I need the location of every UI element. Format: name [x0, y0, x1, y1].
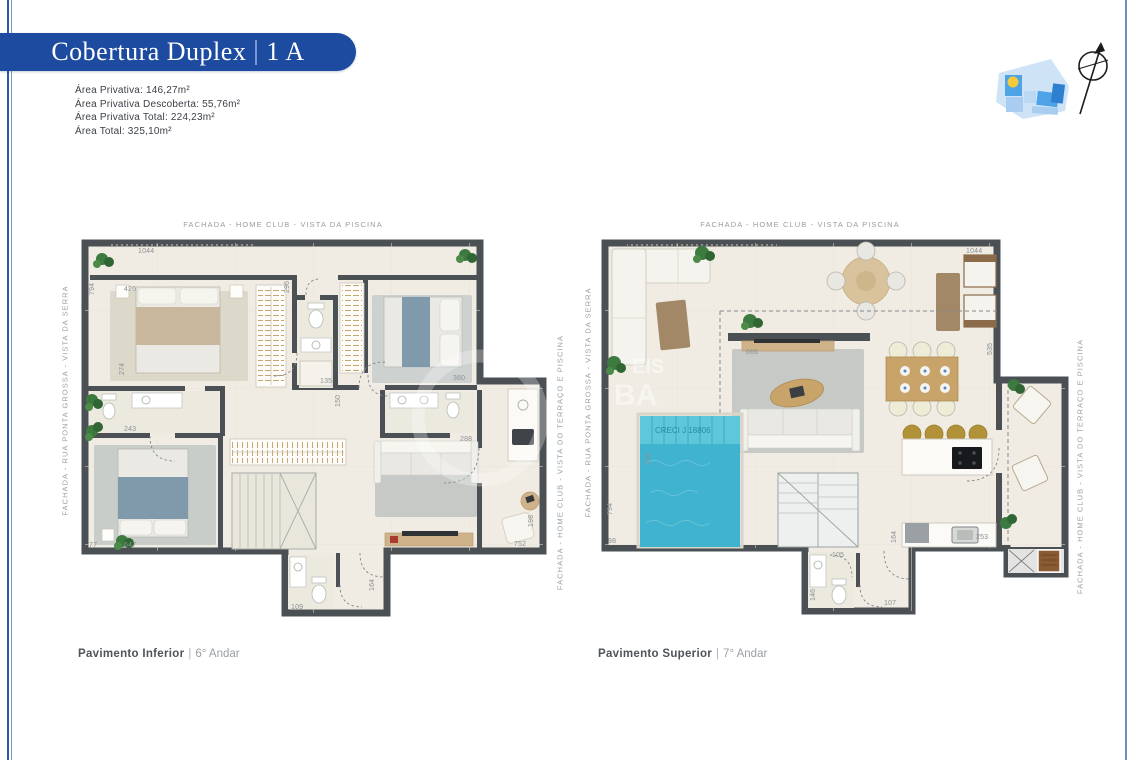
service-shaft: [1007, 548, 1065, 574]
caption-separator: |: [184, 648, 195, 660]
dim-146: 146: [810, 589, 817, 601]
page-title: Cobertura Duplex: [51, 37, 246, 67]
stairs: [778, 473, 858, 547]
caption-superior-title: Pavimento Superior: [598, 648, 712, 660]
dim-77: 77: [89, 542, 97, 549]
dim-243: 243: [124, 426, 136, 433]
dim-426: 426: [124, 286, 136, 293]
dim-98: 98: [608, 538, 616, 545]
caption-superior-floor: 7° Andar: [723, 648, 767, 660]
bathroom-suite-2: [385, 392, 475, 433]
dim-1044: 1044: [966, 248, 982, 255]
dining-table: [886, 342, 958, 416]
bathroom-suite-1: [299, 300, 333, 388]
key-plan-icon: [993, 55, 1077, 123]
dim-360: 360: [453, 375, 465, 382]
dim-164: 164: [891, 531, 898, 543]
title-banner: Cobertura Duplex 1 A: [0, 33, 356, 71]
dim-666: 666: [746, 349, 758, 356]
lavabo: [288, 555, 334, 609]
watermark-frag2: BA: [614, 379, 657, 412]
stairs: [232, 473, 316, 549]
kitchen-island: [902, 425, 992, 475]
facade-label-west-left: FACHADA - RUA PONTA GROSSA - VISTA DA SE…: [61, 201, 70, 601]
area-summary: Área Privativa: 146,27m² Área Privativa …: [75, 84, 240, 138]
area-descoberta: Área Privativa Descoberta: 55,76m²: [75, 98, 240, 112]
dim-150: 150: [335, 395, 342, 407]
facade-label-top-right: FACHADA - HOME CLUB - VISTA DA PISCINA: [602, 220, 998, 229]
dim-535: 535: [987, 343, 994, 355]
area-privativa: Área Privativa: 146,27m²: [75, 84, 240, 98]
dim-164: 164: [369, 579, 376, 591]
caption-separator: |: [712, 648, 723, 660]
north-arrow-icon: [1068, 38, 1120, 123]
left-accent-line-2: [11, 0, 12, 760]
right-accent-line: [1125, 0, 1127, 760]
living-room: [732, 339, 864, 453]
facade-label-west-right: FACHADA - RUA PONTA GROSSA - VISTA DA SE…: [584, 203, 593, 603]
grill: [1038, 550, 1060, 572]
dim-752: 752: [514, 541, 526, 548]
hall-wardrobe: [230, 439, 346, 465]
pergola-trellis: [110, 241, 255, 248]
dim-135: 135: [320, 378, 332, 385]
dim-109: 109: [291, 604, 303, 611]
caption-inferior-title: Pavimento Inferior: [78, 648, 184, 660]
dim-794: 794: [607, 503, 614, 515]
bedroom-1: [110, 285, 248, 381]
title-separator: [255, 40, 257, 65]
dim-105: 105: [832, 552, 844, 559]
dim-234: 234: [645, 453, 652, 465]
brochure-page: { "banner": { "title": "Cobertura Duplex…: [0, 0, 1140, 760]
dim-794: 794: [89, 283, 96, 295]
bathroom-2: [90, 391, 218, 433]
watermark-frag1: EIS: [632, 356, 664, 378]
watermark-creci: CRECI J 18806: [655, 426, 711, 435]
unit-label: 1 A: [266, 37, 304, 67]
dim-296: 296: [284, 281, 291, 293]
facade-label-east-left: FACHADA - HOME CLUB - VISTA DO TERRAÇO E…: [556, 263, 565, 663]
area-total: Área Total: 325,10m²: [75, 125, 240, 139]
dim-647: 647: [124, 542, 136, 549]
caption-inferior: Pavimento Inferior|6° Andar: [78, 648, 240, 660]
floor-plan-inferior: 1044 794 426 296 274 135 150 243 77 647 …: [80, 233, 550, 628]
dim-288: 288: [460, 436, 472, 443]
wardrobe-bedroom-1: [256, 285, 286, 387]
caption-superior: Pavimento Superior|7° Andar: [598, 648, 767, 660]
dim-1044: 1044: [138, 248, 154, 255]
facade-label-top-left: FACHADA - HOME CLUB - VISTA DA PISCINA: [85, 220, 481, 229]
wardrobe-suite-2: [340, 283, 364, 373]
dim-274: 274: [119, 363, 126, 375]
floor-plan-superior: CRECI J 18806: [600, 233, 1070, 628]
pool: CRECI J 18806: [638, 414, 742, 547]
dim-253: 253: [976, 534, 988, 541]
bedroom-suite-2: [372, 295, 472, 383]
left-accent-line: [7, 0, 9, 760]
dim-198: 198: [528, 515, 535, 527]
area-privativa-total: Área Privativa Total: 224,23m²: [75, 111, 240, 125]
caption-inferior-floor: 6° Andar: [195, 648, 239, 660]
facade-label-east-right: FACHADA - HOME CLUB - VISTA DO TERRAÇO E…: [1076, 267, 1085, 667]
bedroom-3: [94, 445, 216, 545]
dim-107: 107: [884, 600, 896, 607]
